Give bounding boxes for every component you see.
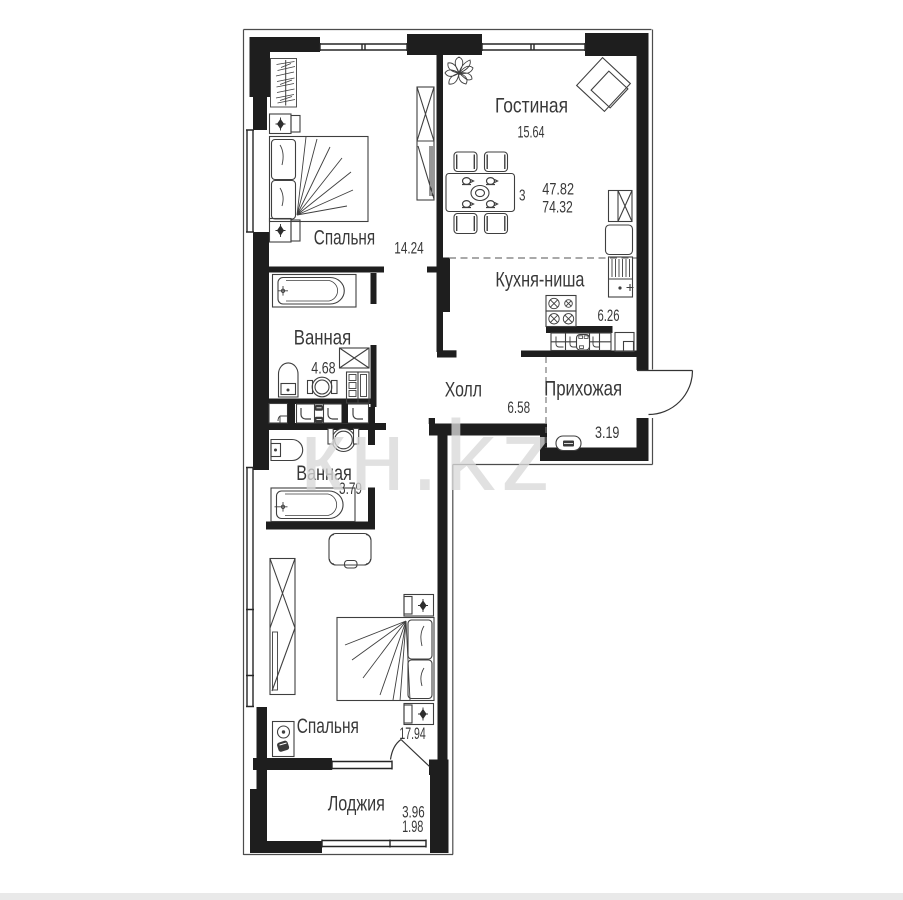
svg-text:1.98: 1.98 <box>402 818 423 836</box>
svg-text:3.19: 3.19 <box>595 424 619 442</box>
svg-text:Прихожая: Прихожая <box>544 378 622 401</box>
svg-text:74.32: 74.32 <box>542 199 573 217</box>
svg-text:Лоджия: Лоджия <box>328 793 385 816</box>
svg-text:Гостиная: Гостиная <box>495 95 568 118</box>
svg-text:кн.kz: кн.kz <box>300 400 557 512</box>
svg-text:4.68: 4.68 <box>311 360 335 378</box>
svg-text:Ванная: Ванная <box>294 326 351 349</box>
svg-text:17.94: 17.94 <box>399 725 425 743</box>
svg-text:14.24: 14.24 <box>394 239 423 257</box>
svg-text:Кухня-ниша: Кухня-ниша <box>495 269 584 292</box>
svg-text:Спальня: Спальня <box>314 226 375 249</box>
svg-text:6.26: 6.26 <box>598 307 620 325</box>
svg-text:47.82: 47.82 <box>542 181 574 199</box>
svg-text:Холл: Холл <box>445 379 482 402</box>
svg-text:3: 3 <box>519 188 526 205</box>
svg-text:Спальня: Спальня <box>297 715 359 738</box>
svg-text:15.64: 15.64 <box>518 124 545 142</box>
